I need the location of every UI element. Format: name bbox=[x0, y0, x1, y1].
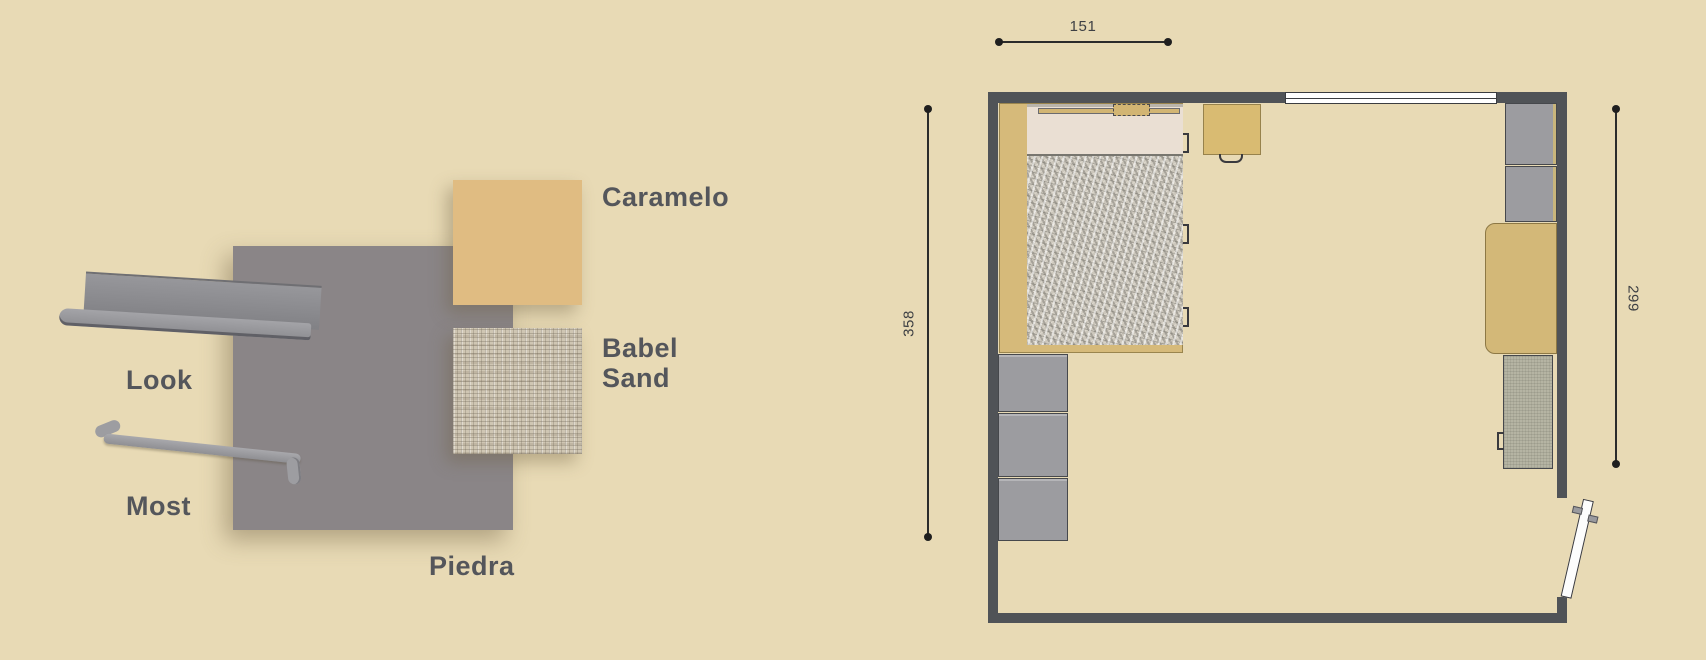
caramelo-label: Caramelo bbox=[602, 182, 729, 212]
bed-blanket bbox=[1027, 154, 1183, 345]
dimension-dot bbox=[1164, 38, 1172, 46]
cabinet-left-1 bbox=[998, 354, 1068, 412]
dimension-dot bbox=[924, 533, 932, 541]
cabinet-right-2 bbox=[1505, 166, 1557, 222]
door-handle-icon bbox=[1587, 515, 1598, 524]
window bbox=[1285, 92, 1497, 104]
wall-right-upper bbox=[1557, 92, 1567, 498]
caramelo-swatch bbox=[453, 180, 582, 305]
cabinet-sage bbox=[1503, 355, 1553, 469]
bed-side-handle bbox=[1183, 224, 1189, 244]
door-leaf bbox=[1561, 499, 1594, 599]
scene: Look Most Piedra Caramelo Babel Sand bbox=[0, 0, 1706, 660]
look-label: Look bbox=[126, 365, 193, 395]
dimension-dot bbox=[995, 38, 1003, 46]
dimension-dot bbox=[1612, 460, 1620, 468]
cabinet-left-3 bbox=[998, 478, 1068, 541]
bed-headboard-line bbox=[1027, 104, 1183, 107]
door-handle-icon bbox=[1572, 506, 1583, 515]
cabinet-right-1 bbox=[1505, 103, 1557, 165]
dimension-dot bbox=[924, 105, 932, 113]
dimension-label-left: 358 bbox=[901, 304, 918, 344]
most-label: Most bbox=[126, 491, 191, 521]
desk-chair bbox=[1219, 154, 1243, 163]
wall-bottom bbox=[988, 613, 1567, 623]
bed-side-handle bbox=[1183, 307, 1189, 327]
most-handle-bar bbox=[103, 433, 301, 464]
dimension-line-right bbox=[1615, 109, 1617, 464]
cabinet-sage-handle bbox=[1497, 432, 1504, 450]
dimension-line-left bbox=[927, 109, 929, 537]
dimension-label-top: 151 bbox=[1063, 18, 1103, 35]
babel-sand-label-line2: Sand bbox=[602, 363, 678, 393]
piedra-label: Piedra bbox=[429, 551, 515, 581]
window-glazing-line bbox=[1286, 98, 1496, 99]
babel-sand-swatch bbox=[453, 328, 582, 454]
bed-overhead-shelf bbox=[1113, 104, 1150, 116]
dimension-line-top bbox=[999, 41, 1168, 43]
dimension-label-right: 299 bbox=[1625, 279, 1642, 319]
desk bbox=[1203, 104, 1261, 155]
bed-side-handle bbox=[1183, 133, 1189, 153]
wardrobe bbox=[1485, 223, 1557, 354]
wall-left bbox=[988, 92, 998, 623]
bed-headboard-bar bbox=[1038, 108, 1180, 114]
look-shelf-render bbox=[58, 260, 325, 358]
cabinet-left-2 bbox=[998, 413, 1068, 477]
babel-sand-label-line1: Babel bbox=[602, 333, 678, 363]
babel-sand-label: Babel Sand bbox=[602, 333, 678, 393]
dimension-dot bbox=[1612, 105, 1620, 113]
